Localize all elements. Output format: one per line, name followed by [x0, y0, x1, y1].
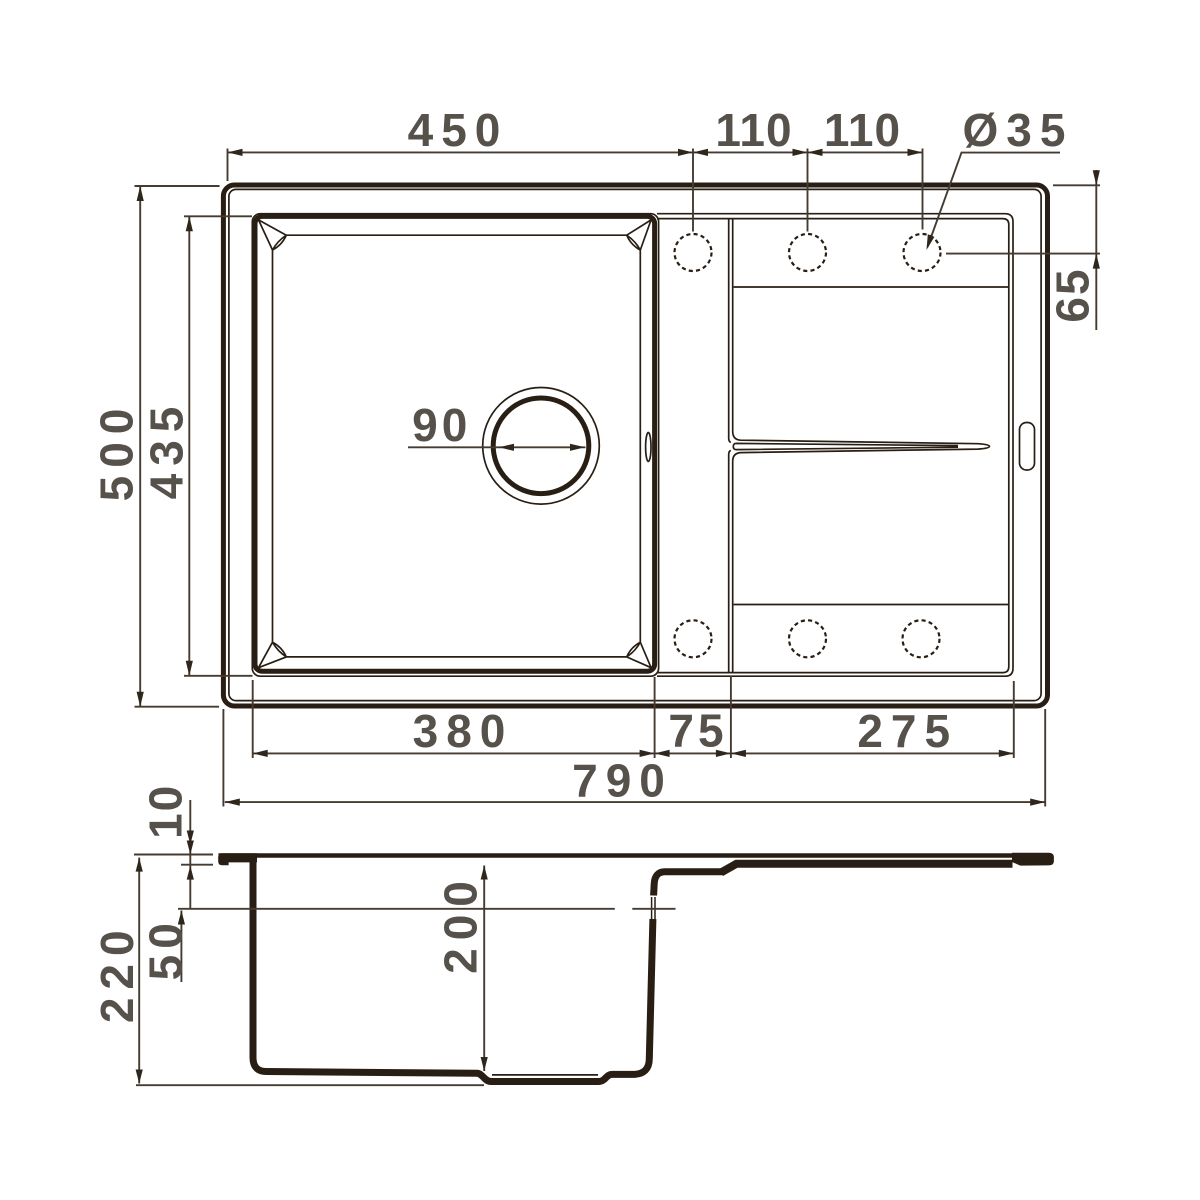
svg-text:110: 110 — [715, 104, 792, 156]
svg-text:790: 790 — [572, 755, 673, 807]
svg-text:110: 110 — [824, 104, 901, 156]
svg-text:50: 50 — [140, 917, 192, 980]
svg-text:220: 220 — [91, 922, 143, 1023]
svg-text:275: 275 — [857, 705, 958, 757]
svg-text:75: 75 — [668, 705, 727, 757]
svg-text:500: 500 — [91, 401, 143, 502]
svg-text:90: 90 — [412, 399, 471, 451]
svg-text:200: 200 — [434, 873, 486, 974]
svg-text:10: 10 — [139, 784, 191, 839]
svg-text:Ø35: Ø35 — [963, 104, 1074, 156]
svg-text:435: 435 — [141, 399, 193, 500]
svg-text:65: 65 — [1047, 267, 1099, 322]
svg-text:380: 380 — [413, 705, 514, 757]
svg-text:450: 450 — [408, 104, 509, 156]
